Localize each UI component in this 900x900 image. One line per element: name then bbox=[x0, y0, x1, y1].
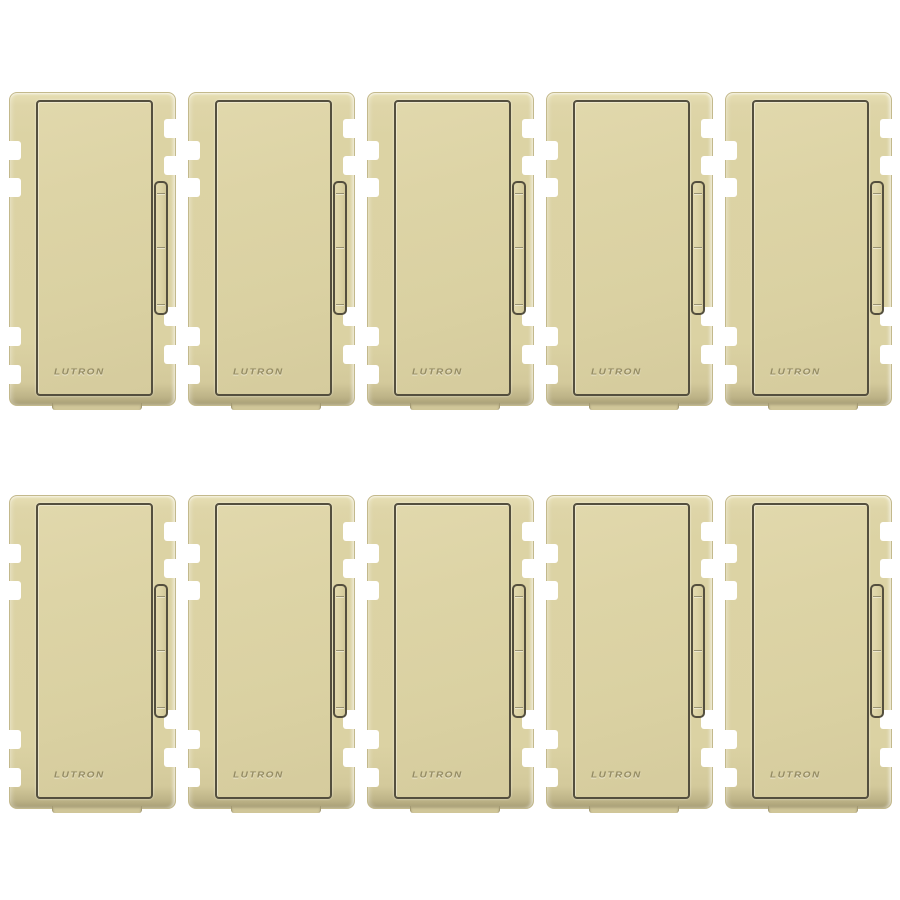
clip-notch-right bbox=[880, 522, 892, 541]
mounting-tab bbox=[589, 806, 679, 813]
clip-notch-left bbox=[367, 581, 379, 600]
mounting-tab bbox=[410, 806, 500, 813]
lutron-brand-embossing: LUTRON bbox=[770, 369, 821, 377]
switch-grid: LUTRON LUTRON bbox=[0, 0, 900, 900]
clip-notch-right bbox=[164, 522, 176, 541]
clip-notch-left bbox=[725, 544, 737, 563]
clip-notch-left bbox=[9, 581, 21, 600]
clip-notch-left bbox=[367, 365, 379, 384]
clip-notch-right bbox=[522, 559, 534, 578]
clip-notch-left bbox=[367, 544, 379, 563]
color-kit-plate: LUTRON bbox=[725, 495, 892, 809]
color-kit-plate: LUTRON bbox=[546, 495, 713, 809]
slider-seam bbox=[336, 193, 344, 194]
clip-notch-right bbox=[343, 748, 355, 767]
clip-notch-right bbox=[164, 559, 176, 578]
switch-paddle: LUTRON bbox=[36, 100, 153, 396]
clip-notch-left bbox=[9, 768, 21, 787]
clip-notch-right bbox=[701, 748, 713, 767]
clip-notch-right bbox=[701, 156, 713, 175]
clip-notch-right bbox=[343, 559, 355, 578]
clip-notch-left bbox=[367, 327, 379, 346]
lutron-brand-embossing: LUTRON bbox=[233, 772, 284, 780]
clip-notch-left bbox=[725, 178, 737, 197]
clip-notch-left bbox=[725, 768, 737, 787]
lutron-brand-embossing: LUTRON bbox=[54, 772, 105, 780]
clip-notch-left bbox=[546, 365, 558, 384]
switch-paddle: LUTRON bbox=[36, 503, 153, 799]
clip-notch-right bbox=[880, 559, 892, 578]
clip-notch-left bbox=[367, 768, 379, 787]
mounting-tab bbox=[231, 403, 321, 410]
clip-notch-left bbox=[188, 730, 200, 749]
clip-notch-left bbox=[188, 768, 200, 787]
slider-seam bbox=[515, 193, 523, 194]
clip-notch-right bbox=[343, 156, 355, 175]
dimmer-slider bbox=[512, 584, 526, 718]
slider-seam bbox=[873, 193, 881, 194]
clip-notch-left bbox=[9, 327, 21, 346]
clip-notch-right bbox=[164, 748, 176, 767]
dimmer-slider bbox=[691, 181, 705, 315]
clip-notch-left bbox=[367, 178, 379, 197]
slider-seam bbox=[873, 707, 881, 708]
clip-notch-left bbox=[367, 730, 379, 749]
clip-notch-left bbox=[546, 581, 558, 600]
clip-notch-right bbox=[880, 119, 892, 138]
slider-seam bbox=[157, 596, 165, 597]
slider-seam bbox=[515, 596, 523, 597]
clip-notch-left bbox=[546, 544, 558, 563]
slider-seam bbox=[157, 304, 165, 305]
clip-notch-left bbox=[188, 327, 200, 346]
mounting-tab bbox=[52, 403, 142, 410]
mounting-tab bbox=[589, 403, 679, 410]
slider-seam bbox=[157, 707, 165, 708]
mounting-tab bbox=[410, 403, 500, 410]
slider-seam bbox=[694, 247, 702, 248]
slider-seam bbox=[873, 304, 881, 305]
clip-notch-right bbox=[522, 156, 534, 175]
slider-seam bbox=[336, 707, 344, 708]
switch-paddle: LUTRON bbox=[215, 503, 332, 799]
clip-notch-right bbox=[701, 559, 713, 578]
slider-seam bbox=[873, 650, 881, 651]
slider-seam bbox=[157, 247, 165, 248]
mounting-tab bbox=[52, 806, 142, 813]
clip-notch-right bbox=[522, 345, 534, 364]
clip-notch-left bbox=[725, 581, 737, 600]
clip-notch-right bbox=[880, 156, 892, 175]
lutron-brand-embossing: LUTRON bbox=[412, 369, 463, 377]
slider-seam bbox=[694, 304, 702, 305]
clip-notch-left bbox=[725, 365, 737, 384]
slider-seam bbox=[873, 596, 881, 597]
slider-seam bbox=[694, 650, 702, 651]
slider-seam bbox=[515, 304, 523, 305]
dimmer-slider bbox=[691, 584, 705, 718]
clip-notch-left bbox=[188, 141, 200, 160]
lutron-brand-embossing: LUTRON bbox=[770, 772, 821, 780]
color-kit-plate: LUTRON bbox=[9, 92, 176, 406]
clip-notch-left bbox=[9, 365, 21, 384]
clip-notch-left bbox=[9, 730, 21, 749]
slider-seam bbox=[515, 650, 523, 651]
slider-seam bbox=[336, 650, 344, 651]
slider-seam bbox=[694, 596, 702, 597]
slider-seam bbox=[515, 707, 523, 708]
clip-notch-right bbox=[880, 345, 892, 364]
lutron-brand-embossing: LUTRON bbox=[233, 369, 284, 377]
switch-paddle: LUTRON bbox=[752, 503, 869, 799]
slider-seam bbox=[694, 193, 702, 194]
slider-seam bbox=[157, 193, 165, 194]
clip-notch-left bbox=[188, 581, 200, 600]
clip-notch-left bbox=[546, 730, 558, 749]
mounting-tab bbox=[768, 806, 858, 813]
clip-notch-left bbox=[188, 544, 200, 563]
clip-notch-right bbox=[522, 119, 534, 138]
clip-notch-right bbox=[343, 119, 355, 138]
switch-paddle: LUTRON bbox=[215, 100, 332, 396]
clip-notch-left bbox=[725, 730, 737, 749]
color-kit-plate: LUTRON bbox=[367, 92, 534, 406]
dimmer-slider bbox=[870, 584, 884, 718]
clip-notch-left bbox=[546, 141, 558, 160]
clip-notch-right bbox=[701, 522, 713, 541]
switch-paddle: LUTRON bbox=[573, 100, 690, 396]
slider-seam bbox=[157, 650, 165, 651]
slider-seam bbox=[336, 247, 344, 248]
clip-notch-left bbox=[188, 178, 200, 197]
clip-notch-right bbox=[164, 345, 176, 364]
color-kit-plate: LUTRON bbox=[9, 495, 176, 809]
clip-notch-right bbox=[343, 345, 355, 364]
clip-notch-left bbox=[546, 768, 558, 787]
clip-notch-left bbox=[725, 327, 737, 346]
clip-notch-right bbox=[522, 748, 534, 767]
clip-notch-right bbox=[701, 345, 713, 364]
clip-notch-left bbox=[9, 141, 21, 160]
clip-notch-left bbox=[9, 178, 21, 197]
slider-seam bbox=[515, 247, 523, 248]
lutron-brand-embossing: LUTRON bbox=[54, 369, 105, 377]
slider-seam bbox=[336, 596, 344, 597]
clip-notch-right bbox=[164, 119, 176, 138]
clip-notch-left bbox=[546, 178, 558, 197]
slider-seam bbox=[336, 304, 344, 305]
switch-paddle: LUTRON bbox=[752, 100, 869, 396]
slider-seam bbox=[873, 247, 881, 248]
clip-notch-left bbox=[725, 141, 737, 160]
clip-notch-left bbox=[546, 327, 558, 346]
dimmer-slider bbox=[512, 181, 526, 315]
clip-notch-right bbox=[343, 522, 355, 541]
color-kit-plate: LUTRON bbox=[725, 92, 892, 406]
clip-notch-right bbox=[701, 119, 713, 138]
dimmer-slider bbox=[154, 181, 168, 315]
mounting-tab bbox=[231, 806, 321, 813]
dimmer-slider bbox=[870, 181, 884, 315]
clip-notch-left bbox=[367, 141, 379, 160]
slider-seam bbox=[694, 707, 702, 708]
clip-notch-left bbox=[9, 544, 21, 563]
lutron-brand-embossing: LUTRON bbox=[591, 369, 642, 377]
switch-paddle: LUTRON bbox=[573, 503, 690, 799]
mounting-tab bbox=[768, 403, 858, 410]
lutron-brand-embossing: LUTRON bbox=[591, 772, 642, 780]
clip-notch-right bbox=[164, 156, 176, 175]
clip-notch-left bbox=[188, 365, 200, 384]
color-kit-plate: LUTRON bbox=[188, 92, 355, 406]
clip-notch-right bbox=[880, 748, 892, 767]
dimmer-slider bbox=[333, 584, 347, 718]
dimmer-slider bbox=[154, 584, 168, 718]
color-kit-plate: LUTRON bbox=[367, 495, 534, 809]
product-photo-canvas: LUTRON LUTRON bbox=[0, 0, 900, 900]
lutron-brand-embossing: LUTRON bbox=[412, 772, 463, 780]
dimmer-slider bbox=[333, 181, 347, 315]
clip-notch-right bbox=[522, 522, 534, 541]
switch-paddle: LUTRON bbox=[394, 100, 511, 396]
color-kit-plate: LUTRON bbox=[546, 92, 713, 406]
color-kit-plate: LUTRON bbox=[188, 495, 355, 809]
switch-paddle: LUTRON bbox=[394, 503, 511, 799]
